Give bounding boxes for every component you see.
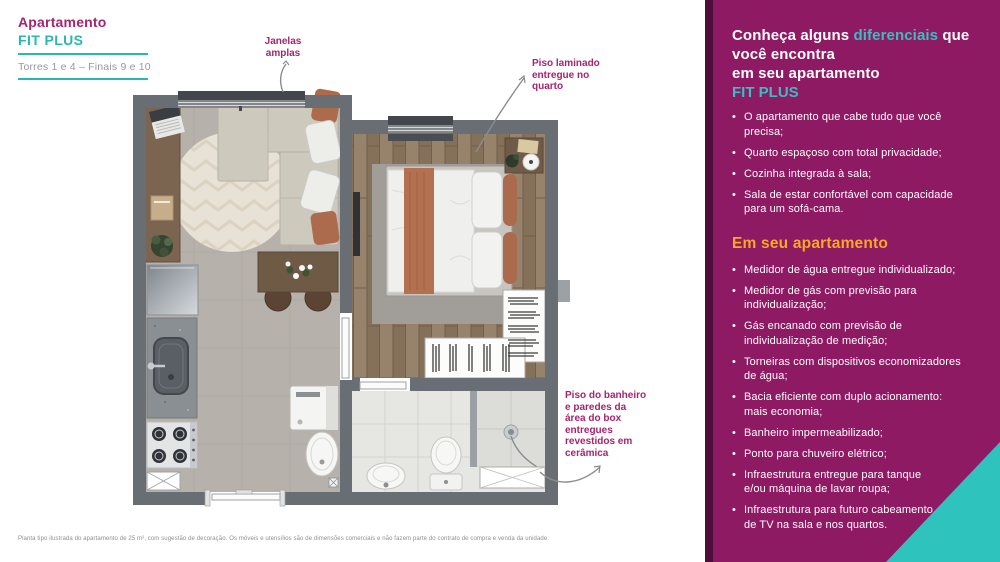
towers-label: Torres 1 e 4 – Finais 9 e 10 — [18, 61, 168, 73]
floor-plan — [120, 80, 570, 512]
bathroom-door — [360, 382, 406, 389]
living-window — [178, 91, 305, 111]
feature-item: O apartamento que cabe tudo que você pre… — [732, 110, 978, 139]
headline-accent: diferenciais — [854, 27, 939, 44]
apartment-item: Infraestrutura para futuro cabeamento de… — [732, 503, 978, 532]
kitchen-counter — [147, 318, 197, 418]
notebook — [151, 196, 173, 220]
bathroom-sink — [367, 463, 405, 489]
panel-headline: Conheça alguns diferenciais que você enc… — [732, 26, 978, 83]
desk-plant — [151, 235, 173, 257]
feature-item: Quarto espaçoso com total privacidade; — [732, 146, 978, 161]
feature-item: Cozinha integrada à sala; — [732, 167, 978, 182]
apartment-item: Torneiras com dispositivos economizadore… — [732, 355, 978, 384]
apartment-item: Medidor de água entregue individualizado… — [732, 263, 978, 278]
shower-partition — [470, 391, 477, 467]
annotation-laminate: Piso laminado entregue no quarto — [532, 58, 622, 93]
plan-header: Apartamento FIT PLUS Torres 1 e 4 – Fina… — [18, 14, 168, 80]
section2-title: Em seu apartamento — [732, 235, 978, 253]
nightstand — [505, 138, 543, 173]
page: Apartamento FIT PLUS Torres 1 e 4 – Fina… — [0, 0, 1000, 562]
apartment-item: Bacia eficiente com duplo acionamento: m… — [732, 390, 978, 419]
floor-plan-svg — [120, 80, 570, 512]
apartment-items-list: Medidor de água entregue individualizado… — [732, 263, 978, 533]
bedroom-door — [342, 318, 349, 378]
teal-rule — [18, 53, 148, 55]
stove — [147, 422, 197, 468]
features-panel: Conheça alguns diferenciais que você enc… — [705, 0, 1000, 562]
tv-panel — [353, 192, 360, 256]
laundry-tank — [306, 432, 338, 476]
apartment-item: Banheiro impermeabilizado; — [732, 426, 978, 441]
panel-plan-name: FIT PLUS — [732, 83, 978, 102]
toilet — [430, 437, 462, 490]
apartment-item: Medidor de gás com previsão para individ… — [732, 284, 978, 313]
fridge — [147, 265, 198, 315]
bedroom-window — [388, 116, 453, 141]
kitchen-cabinet — [147, 472, 180, 490]
headline-pre: Conheça alguns — [732, 27, 854, 44]
desk — [145, 103, 185, 262]
washing-machine — [290, 386, 338, 430]
apartment-item: Infraestrutura entregue para tanque e/ou… — [732, 468, 978, 497]
plan-name: FIT PLUS — [18, 32, 168, 48]
features-list: O apartamento que cabe tudo que você pre… — [732, 110, 978, 217]
annotation-ceramic: Piso do banheiro e paredes da área do bo… — [565, 390, 665, 459]
annotation-windows: Janelas amplas — [248, 36, 318, 59]
entrance-door — [205, 490, 285, 506]
page-title: Apartamento — [18, 14, 168, 30]
panel-dark-strip — [705, 0, 713, 562]
bed — [386, 166, 517, 296]
kitchen-sink — [148, 338, 189, 394]
floor-drain — [329, 478, 338, 487]
feature-item: Sala de estar confortável com capacidade… — [732, 188, 978, 217]
apartment-item: Gás encanado com previsão de individuali… — [732, 319, 978, 348]
disclaimer: Planta tipo ilustrada do apartamento de … — [18, 536, 578, 542]
apartment-item: Ponto para chuveiro elétrico; — [732, 447, 978, 462]
